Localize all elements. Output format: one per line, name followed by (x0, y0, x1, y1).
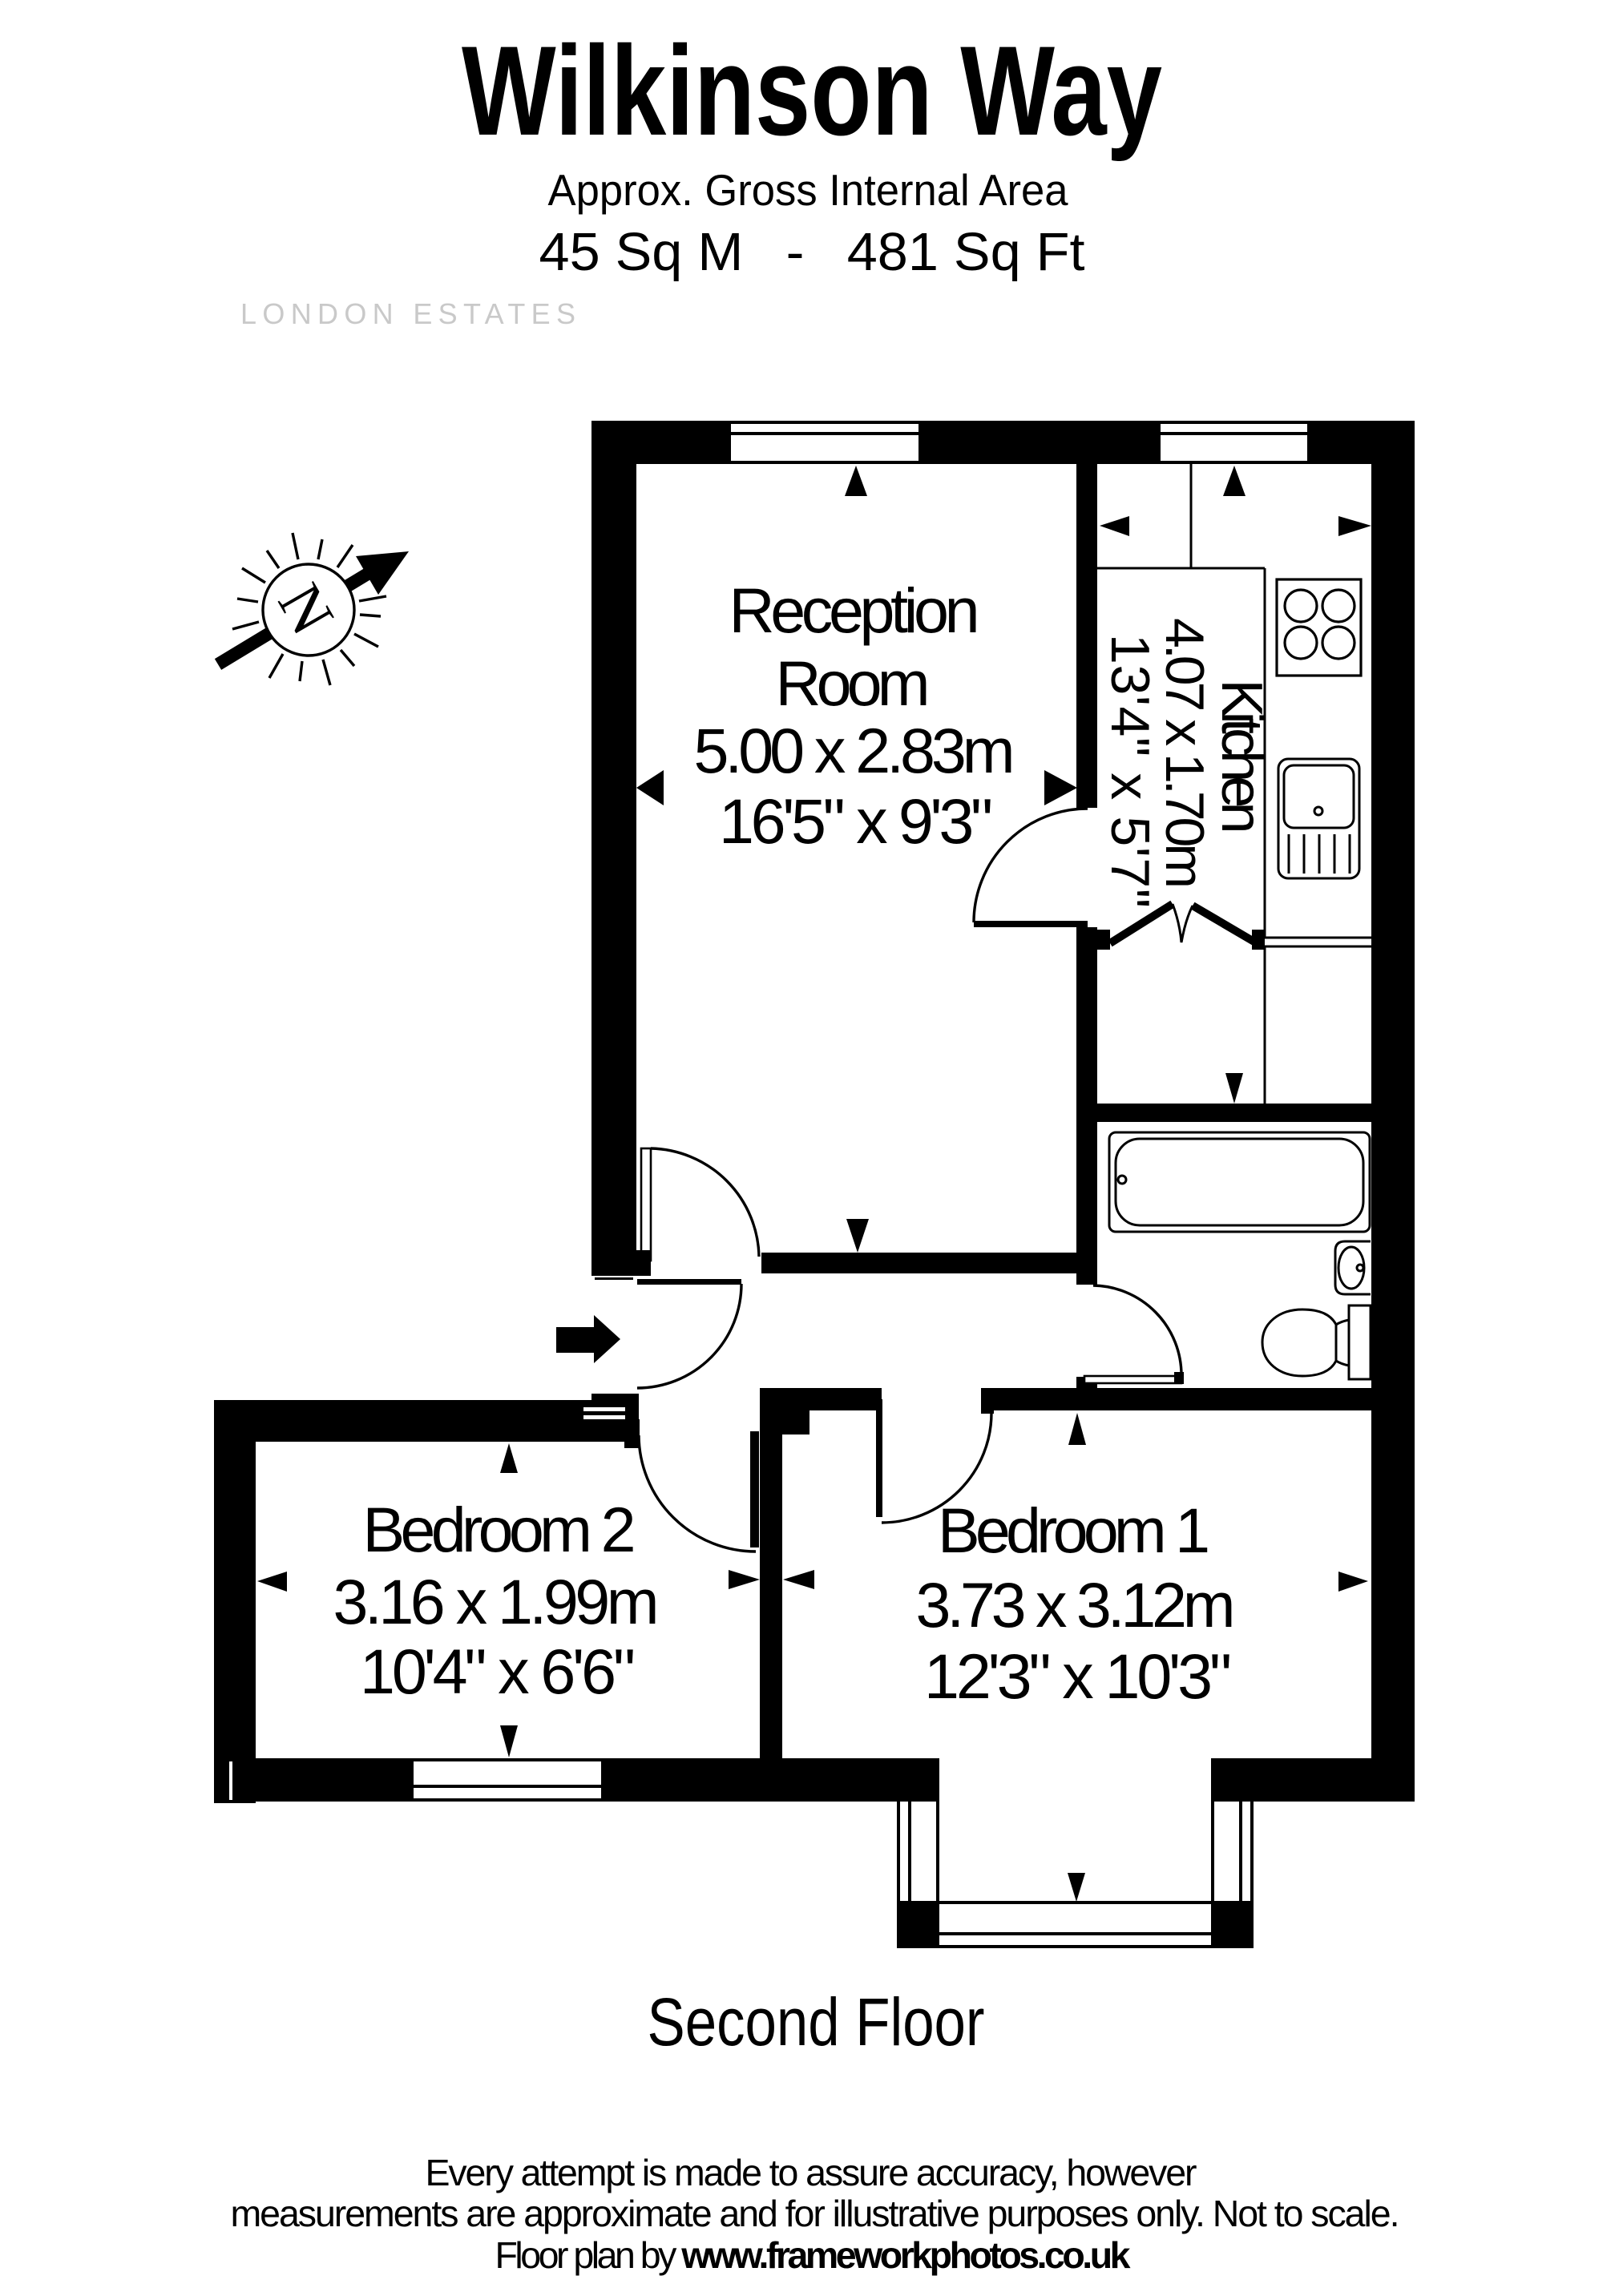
svg-text:Floor plan by www.frameworkpho: Floor plan by www.frameworkphotos.co.uk (495, 2234, 1131, 2276)
svg-text:4.07 x 1.70m: 4.07 x 1.70m (1154, 618, 1215, 889)
svg-text:Bedroom 2: Bedroom 2 (363, 1494, 636, 1565)
svg-text:45 Sq M - 481 Sq Ft: 45 Sq M - 481 Sq Ft (539, 222, 1085, 282)
svg-text:Kitchen: Kitchen (1209, 680, 1274, 834)
svg-text:13'4" x 5'7": 13'4" x 5'7" (1100, 634, 1161, 908)
svg-text:Second Floor: Second Floor (648, 1984, 985, 2060)
svg-text:Every attempt is made to assur: Every attempt is made to assure accuracy… (426, 2152, 1197, 2193)
svg-text:Approx. Gross Internal Area: Approx. Gross Internal Area (548, 165, 1068, 215)
svg-text:Wilkinson Way: Wilkinson Way (462, 19, 1162, 162)
svg-text:3.16 x 1.99m: 3.16 x 1.99m (333, 1566, 660, 1637)
svg-text:16'5" x 9'3": 16'5" x 9'3" (719, 785, 993, 857)
svg-text:5.00 x 2.83m: 5.00 x 2.83m (694, 715, 1015, 786)
svg-text:10'4" x 6'6": 10'4" x 6'6" (360, 1636, 636, 1707)
svg-text:3.73 x 3.12m: 3.73 x 3.12m (916, 1569, 1236, 1640)
svg-text:Room: Room (776, 648, 931, 719)
svg-text:Bedroom 1: Bedroom 1 (938, 1495, 1210, 1566)
svg-text:12'3" x 10'3": 12'3" x 10'3" (924, 1640, 1232, 1712)
svg-text:Reception: Reception (729, 575, 980, 646)
svg-text:measurements are approximate a: measurements are approximate and for ill… (231, 2193, 1400, 2234)
svg-text:LONDON ESTATES: LONDON ESTATES (240, 297, 580, 330)
